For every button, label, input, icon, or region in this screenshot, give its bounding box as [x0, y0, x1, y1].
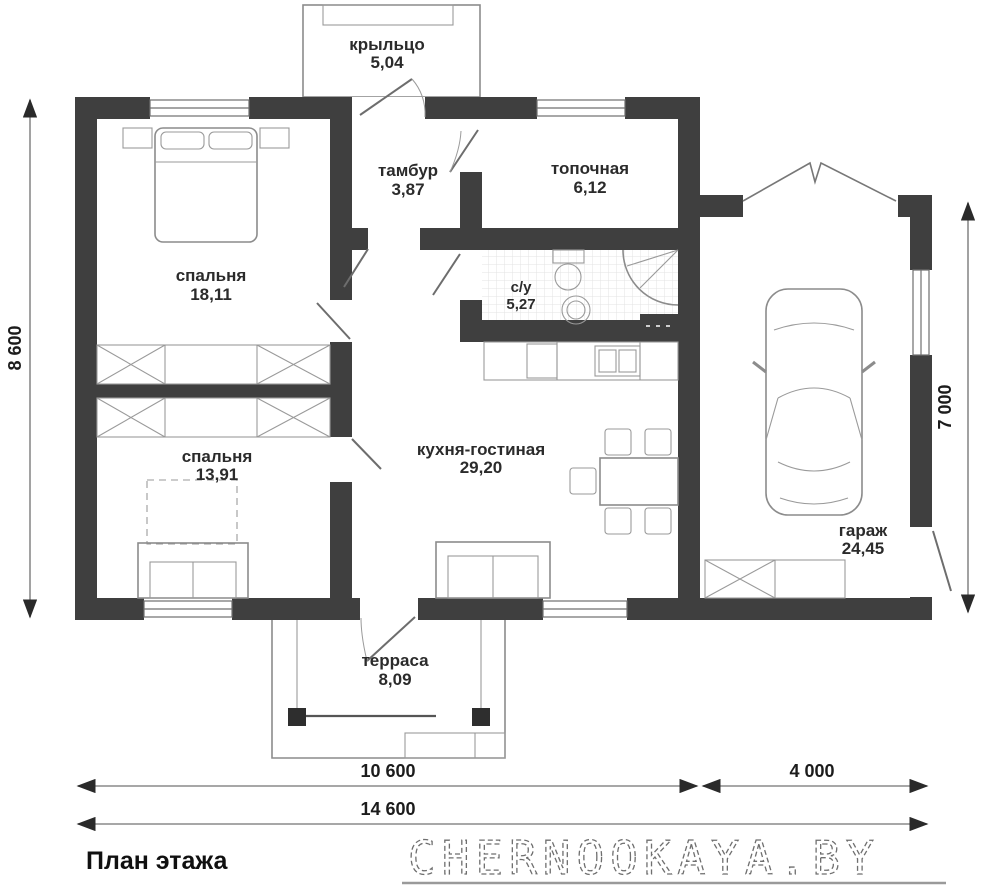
room-name-kitchen: кухня-гостиная — [417, 440, 545, 459]
room-label-porch: крыльцо 5,04 — [349, 35, 425, 72]
room-area-porch: 5,04 — [370, 53, 404, 72]
bed — [155, 128, 257, 242]
room-name-terrace: терраса — [361, 651, 429, 670]
wall-bedroom1-right — [330, 97, 352, 300]
vestibule-boiler-door-leaf — [450, 130, 478, 172]
dimension-right: 7 000 — [935, 203, 968, 612]
room-area-kitchen: 29,20 — [460, 458, 503, 477]
watermark: CHERNOOKAYA.BY — [408, 831, 880, 885]
room-label-kitchen: кухня-гостиная 29,20 — [417, 440, 545, 477]
dimension-bottom: 10 600 4 000 14 600 — [78, 761, 927, 824]
bedroom2-door-leaf — [352, 439, 381, 469]
wall-left — [75, 97, 97, 620]
garage-gate-gap — [743, 195, 898, 217]
room-name-porch: крыльцо — [349, 35, 425, 54]
washer-unit — [640, 314, 678, 338]
nightstand — [123, 128, 152, 148]
room-area-bathroom: 5,27 — [506, 296, 535, 313]
page-title: План этажа — [86, 847, 228, 875]
room-label-terrace: терраса 8,09 — [361, 651, 429, 689]
window-boiler-top — [537, 100, 625, 116]
dining-set — [570, 429, 678, 534]
room-name-bedroom2: спальня — [182, 447, 253, 466]
room-name-vestibule: тамбур — [378, 161, 438, 180]
chair — [645, 508, 671, 534]
closet-strip-lower — [97, 398, 330, 437]
room-name-garage: гараж — [839, 521, 888, 540]
terrace-post — [472, 708, 490, 726]
floor-plan-drawing: 8 600 7 000 10 600 4 000 14 600 крыльцо … — [0, 0, 1000, 887]
wall-between-bedrooms — [97, 384, 330, 398]
planned-wardrobe — [147, 480, 237, 544]
room-area-bedroom2: 13,91 — [196, 465, 239, 484]
closet-strip-upper — [97, 345, 330, 384]
dimension-left: 8 600 — [5, 100, 30, 617]
sofa-bedroom2 — [138, 543, 248, 598]
garage-side-door-leaf — [933, 531, 951, 591]
wall-house-right — [678, 97, 700, 620]
room-area-garage: 24,45 — [842, 539, 885, 558]
front-door-gap — [352, 97, 425, 119]
pillow — [209, 132, 252, 149]
garage-side-door-gap — [910, 527, 932, 597]
room-label-bedroom1: спальня 18,11 — [176, 266, 247, 304]
dim-width-total: 14 600 — [360, 799, 415, 819]
bathroom-door-leaf — [433, 254, 460, 295]
room-area-bedroom1: 18,11 — [190, 285, 232, 304]
dim-height-total: 8 600 — [5, 325, 25, 370]
room-area-terrace: 8,09 — [378, 670, 411, 689]
chair — [645, 429, 671, 455]
room-name-bedroom1: спальня — [176, 266, 247, 285]
car — [753, 289, 875, 515]
room-label-boiler: топочная 6,12 — [551, 159, 629, 197]
window-bedroom2-bottom — [144, 601, 232, 617]
wall-bedroom2-right — [330, 482, 352, 598]
room-label-bathroom: с/у 5,27 — [506, 279, 535, 313]
sofa-living — [436, 542, 550, 598]
dining-table — [600, 458, 678, 505]
room-label-bedroom2: спальня 13,91 — [182, 447, 253, 484]
kitchen-counter — [484, 342, 678, 380]
terrace-door-gap — [360, 598, 418, 620]
stove — [595, 346, 640, 376]
window-garage-right — [913, 270, 929, 355]
floor-plan-page: 8 600 7 000 10 600 4 000 14 600 крыльцо … — [0, 0, 1000, 887]
pillow — [161, 132, 204, 149]
terrace-post — [288, 708, 306, 726]
nightstand — [260, 128, 289, 148]
windows — [144, 100, 929, 617]
bedroom1-door-leaf — [317, 303, 350, 339]
chair — [605, 508, 631, 534]
kitchen-sink — [527, 344, 557, 378]
chair — [605, 429, 631, 455]
room-label-garage: гараж 24,45 — [839, 521, 888, 558]
room-label-vestibule: тамбур 3,87 — [378, 161, 438, 199]
window-living-bottom — [543, 601, 627, 617]
garage-workbench — [705, 560, 845, 598]
room-area-vestibule: 3,87 — [391, 180, 424, 199]
wall-vestibule-bottom-stub — [352, 228, 368, 250]
dim-width-main: 10 600 — [360, 761, 415, 781]
car-mirror — [862, 362, 875, 372]
room-name-boiler: топочная — [551, 159, 629, 178]
room-name-bathroom: с/у — [511, 279, 533, 296]
window-bedroom1-top — [150, 100, 249, 116]
car-mirror — [753, 362, 766, 372]
chair — [570, 468, 596, 494]
wall-bathroom-top — [420, 228, 700, 250]
dim-garage-height: 7 000 — [935, 384, 955, 429]
wall-closet-stub — [330, 342, 352, 437]
room-area-boiler: 6,12 — [573, 178, 606, 197]
dim-width-garage: 4 000 — [789, 761, 834, 781]
